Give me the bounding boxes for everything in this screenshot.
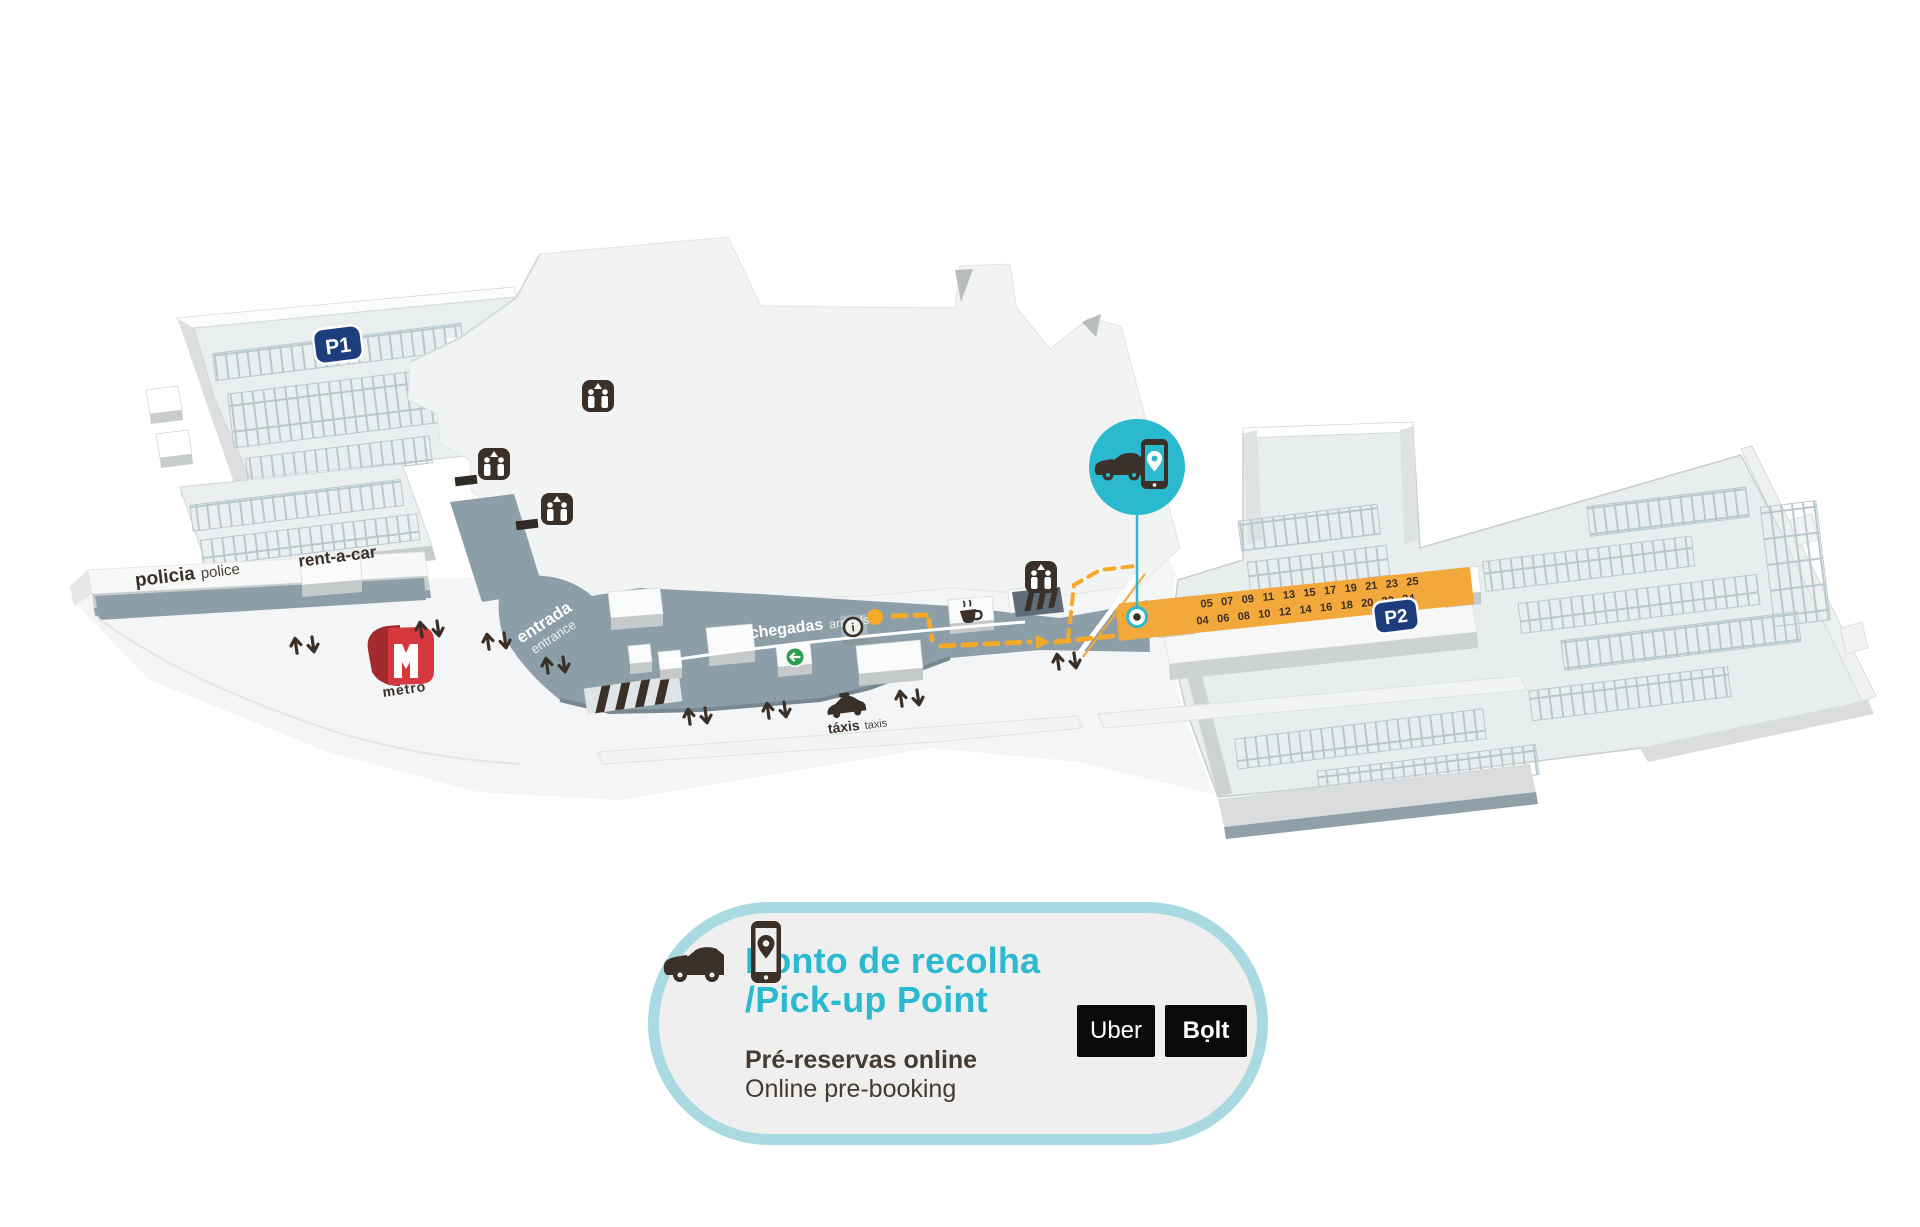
pickup-bay-number: 17 [1323,584,1336,597]
pickup-bay-number: 16 [1319,601,1332,614]
pickup-bay-number: 18 [1340,599,1353,612]
uber-badge: Uber [1077,1005,1155,1057]
legend-title-en: /Pick-up Point [745,981,1045,1020]
pickup-bay-number: 07 [1221,595,1234,608]
pickup-bay-number: 08 [1237,610,1250,623]
bolt-label: Bọlt [1183,1017,1230,1045]
elevator-icon [478,448,510,480]
airport-pickup-map: 0507091113151719212325 04060810121416182… [0,0,1920,1227]
legend-subtitle: Pré-reservas online Online pre-booking [745,1046,1045,1105]
elevator-icon [582,380,614,412]
p1-badge: P1 [312,324,364,365]
legend-title-pt: Ponto de recolha [745,942,1045,981]
legend-title: Ponto de recolha /Pick-up Point [745,942,1045,1019]
pickup-bay-number: 19 [1344,582,1357,595]
pickup-bay-number: 25 [1406,575,1419,588]
legend-subtitle-en: Online pre-booking [745,1075,1045,1105]
pickup-bay-number: 05 [1200,597,1213,610]
legend-subtitle-pt: Pré-reservas online [745,1046,1045,1076]
info-icon: i [843,617,863,637]
pickup-bay-number: 23 [1385,578,1398,591]
uber-label: Uber [1090,1017,1142,1045]
pickup-bay-number: 09 [1241,593,1254,606]
pickup-bay-number: 10 [1258,608,1271,621]
pickup-bay-number: 14 [1299,603,1313,616]
pickup-bay-number: 12 [1278,606,1291,619]
pickup-bay-number: 21 [1365,580,1378,593]
elevator-icon [1025,561,1057,593]
bolt-badge: Bọlt [1165,1005,1247,1057]
pickup-bay-number: 15 [1303,586,1316,599]
pickup-legend-card: Ponto de recolha /Pick-up Point Pré-rese… [648,902,1268,1145]
car-with-phone-icon [1089,419,1185,515]
p2-badge: P2 [1372,597,1420,634]
elevator-icon [541,493,573,525]
pickup-bay-number: 20 [1361,597,1374,610]
exit-arrow-icon [785,647,805,667]
svg-text:P1: P1 [324,333,353,359]
pickup-bay-number: 06 [1217,612,1230,625]
pickup-bay-number: 04 [1196,614,1210,627]
pickup-bay-number: 13 [1282,589,1295,602]
car-with-phone-icon [659,913,787,997]
provider-badges: Uber Bọlt [1077,1005,1247,1057]
pickup-bay-number: 11 [1262,591,1275,604]
svg-text:P2: P2 [1383,606,1409,630]
